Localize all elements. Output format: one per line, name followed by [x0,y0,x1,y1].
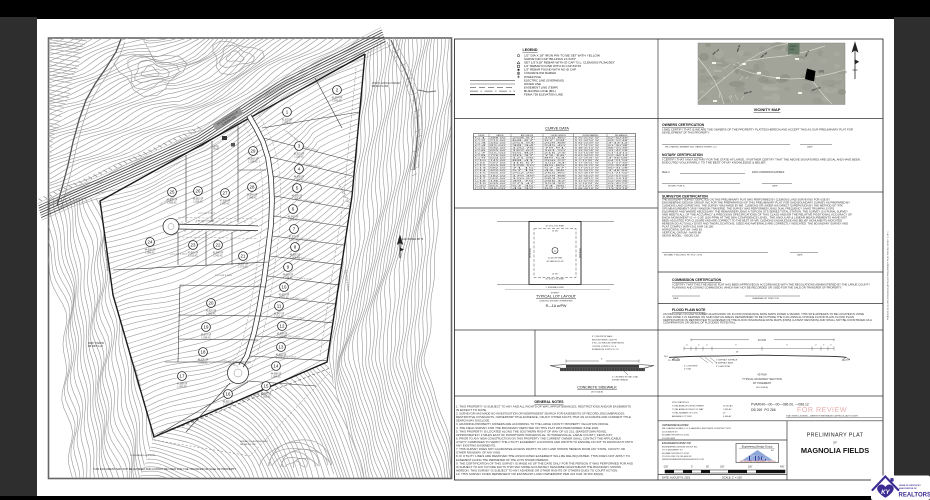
svg-text:20' DR & UTIL ESMT: 20' DR & UTIL ESMT [546,226,566,228]
svg-text:25,000 SF MIN: 25,000 SF MIN [548,258,562,260]
svg-text:1.039 AC: 1.039 AC [248,160,258,163]
svg-text:Engineering Design Group: Engineering Design Group [742,444,773,448]
svg-text:92.57': 92.57' [544,188,569,190]
svg-text:4" CONCRETE WALK: 4" CONCRETE WALK [592,335,613,338]
svg-text:16: 16 [226,392,231,397]
svg-text:1" ASPHALT SURFACE: 1" ASPHALT SURFACE [716,358,738,361]
svg-text:GREEN: GREEN [790,46,797,48]
svg-text:GENERAL NOTES: GENERAL NOTES [534,400,564,404]
svg-text:(UNLESS SHOWN OTHERWISE): (UNLESS SHOWN OTHERWISE) [539,301,572,303]
svg-text:1,802 AC: 1,802 AC [723,408,732,411]
svg-text:DATE: DATE [807,146,813,149]
svg-text:1.026 AC: 1.026 AC [223,403,233,406]
svg-text:48,036 SF: 48,036 SF [198,360,209,362]
svg-text:(NO SCALE): (NO SCALE) [591,391,603,394]
svg-text:CHAIRMAN OR DIRECTOR: CHAIRMAN OR DIRECTOR [752,297,779,300]
svg-text:1/2" REBAR FOUND WITH NO ID CA: 1/2" REBAR FOUND WITH NO ID CAP [524,68,576,72]
svg-text:SUBJECT & ACCESS ONLY: SUBJECT & ACCESS ONLY [240,440,268,443]
svg-text:LEGEND: LEGEND [523,48,538,52]
svg-text:1.068 AC: 1.068 AC [247,196,257,199]
svg-text:1.013 AC: 1.013 AC [294,155,304,158]
svg-text:1.097 AC: 1.097 AC [177,385,187,388]
svg-text:1.026 AC: 1.026 AC [288,218,298,221]
svg-text:-100': -100' [663,465,669,468]
svg-text:4. THE FIELD SURVEY FOR THE BO: 4. THE FIELD SURVEY FOR THE BOUNDARY DEP… [456,427,599,430]
svg-text:THIS DOCUMENT MAY NOT BE ALTER: THIS DOCUMENT MAY NOT BE ALTERED AND CAN… [93,467,236,471]
svg-text:R—1A w/PW: R—1A w/PW [546,304,567,308]
svg-text:TYPICAL LOT LAYOUT: TYPICAL LOT LAYOUT [536,295,577,299]
svg-text:PVA#040-00-00-086.00 MAGNOLIA: PVA#040-00-00-086.00 MAGNOLIA FIELDS PRE… [887,231,890,320]
svg-text:13°33'18": 13°33'18" [608,188,630,190]
svg-text:43,041 SF: 43,041 SF [188,253,199,255]
svg-text:27: 27 [223,191,228,196]
svg-text:ARC LENGTH: ARC LENGTH [521,134,534,137]
svg-text:29: 29 [251,149,256,154]
svg-text:OTHER ROADWAY OF ANY KIND.: OTHER ROADWAY OF ANY KIND. [456,452,501,455]
svg-text:18" PAVEMENT: 18" PAVEMENT [753,381,772,385]
svg-text:X, AND ZONE X IS DEFINED ON SA: X, AND ZONE X IS DEFINED ON SAID MAP AS … [663,316,854,319]
svg-text:41,047 SF: 41,047 SF [274,314,285,316]
svg-text:SURVEYOR CAP "BILLINGS LS 3473: SURVEYOR CAP "BILLINGS LS 3473" [524,57,576,61]
svg-text:1.055 AC: 1.055 AC [167,201,177,204]
svg-text:CONFIRMATION OR DENIAL OF FLOO: CONFIRMATION OR DENIAL OF FLOODING POTEN… [663,322,736,325]
svg-text:49,063 SF: 49,063 SF [283,275,294,277]
svg-text:DATE: DATE [772,185,778,188]
svg-text:1.071 AC: 1.071 AC [238,265,248,268]
svg-text:21: 21 [241,254,246,259]
svg-text:CHORD BEARING: CHORD BEARING [582,134,598,137]
svg-text:1.071 AC: 1.071 AC [282,121,292,124]
svg-text:AS INDICATED ON MAP NUMBER 211: AS INDICATED ON MAP NUMBER 21123C0150C O… [663,313,865,316]
svg-text:13: 13 [279,345,284,350]
svg-text:S 68°46'18" W: S 68°46'18" W [575,188,599,190]
svg-text:44,078 SF: 44,078 SF [145,250,156,252]
svg-text:RESTRICTIVE COVENANTS, OWNERSH: RESTRICTIVE COVENANTS, OWNERSHIP TITLE E… [456,416,631,419]
svg-text:42,074 SF: 42,074 SF [332,98,343,100]
svg-text:ASSOCIATION OF: ASSOCIATION OF [899,487,917,490]
svg-text:1.026 AC: 1.026 AC [193,200,203,203]
svg-text:22: 22 [216,243,221,248]
svg-text:10. THIS SURVEY DOES REPRESENT: 10. THIS SURVEY DOES REPRESENT OR ESTABL… [456,473,604,476]
svg-text:400': 400' [780,465,785,468]
svg-text:TOTAL AREA OF RIGHT OF WAY: TOTAL AREA OF RIGHT OF WAY [672,408,704,411]
svg-text:FOR REVIEW: FOR REVIEW [797,406,847,414]
svg-text:DATE: DATE [673,297,679,300]
svg-text:MAGNOLIA FIELDS: MAGNOLIA FIELDS [801,446,869,455]
svg-text:18: 18 [201,350,206,355]
svg-text:BUILDING LINE (B/L): BUILDING LINE (B/L) [524,89,556,93]
svg-text:47,089 SF: 47,089 SF [177,384,188,386]
svg-text:1/2" REBAR FOUND WITH ID CAP #: 1/2" REBAR FOUND WITH ID CAP #3733 [524,64,582,68]
svg-text:29,194 AC: 29,194 AC [723,405,733,408]
svg-text:23: 23 [191,243,196,248]
svg-text:49,083 SF: 49,083 SF [248,159,259,161]
svg-text:OF: OF [833,441,837,445]
svg-text:ELECTRIC LINE (OVERHEAD): ELECTRIC LINE (OVERHEAD) [524,78,564,82]
svg-text:CONCRETE R/W MARKER: CONCRETE R/W MARKER [524,71,556,75]
svg-text:LAKE: LAKE [790,48,796,51]
svg-text:1.013 AC: 1.013 AC [188,254,198,257]
svg-text:46,042 SF: 46,042 SF [288,217,299,219]
svg-text:PLANNING AND ZONING COMMISSION: PLANNING AND ZONING COMMISSION, WHICH MA… [672,287,842,290]
svg-text:BROOM FINISH, #300 PSI: BROOM FINISH, #300 PSI [592,339,617,341]
svg-text:10' DR & B/L: 10' DR & B/L [530,248,532,258]
svg-text:1.068 AC: 1.068 AC [198,361,208,364]
svg-text:1/2" DIA X 18" IRON PIN TO BE: 1/2" DIA X 18" IRON PIN TO BE SET WITH Y… [524,54,601,58]
svg-text:41,057 SF: 41,057 SF [238,264,249,266]
svg-text:ENGINEERING DESIGN GROUP INC: ENGINEERING DESIGN GROUP INC [662,446,698,448]
svg-text:17: 17 [180,374,185,379]
svg-text:SET 1/2"X18" REBAR WITH ID CAP: SET 1/2"X18" REBAR WITH ID CAP "D.L. CLE… [524,61,615,65]
svg-text:C21: C21 [475,188,486,190]
svg-text:4" DGA: 4" DGA [684,368,691,371]
svg-text:46,062 SF: 46,062 SF [193,199,204,201]
svg-text:CERTIFICATION IS RESTRICTED TO: CERTIFICATION IS RESTRICTED TO A REVIEW … [663,319,873,322]
svg-text:1. THIS PROPERTY IS SUBJECT TO: 1. THIS PROPERTY IS SUBJECT TO ANY AND A… [456,406,631,409]
svg-text:1.084 AC: 1.084 AC [145,251,155,254]
svg-text:20' DR & UTIL ESMT: 20' DR & UTIL ESMT [546,279,566,281]
svg-text:46,052 SF: 46,052 SF [223,402,234,404]
svg-text:224 N MILES ST: 224 N MILES ST [662,431,678,433]
svg-text:MARY HARDIN: MARY HARDIN [88,342,104,345]
svg-text:TYPICAL ROADWAY SECTION: TYPICAL ROADWAY SECTION [742,377,782,381]
svg-text:41,037 SF: 41,037 SF [282,120,293,122]
svg-text:DATE: DATE [797,254,803,257]
svg-text:24%: 24% [664,356,668,358]
svg-text:86.00': 86.00' [490,188,508,190]
svg-text:9. THE CERTIFICATION OF THIS S: 9. THE CERTIFICATION OF THIS SURVEY IS M… [456,462,633,465]
svg-text:40,020 SF: 40,020 SF [206,311,217,313]
svg-text:SITE STATISTICS: SITE STATISTICS [672,401,690,404]
svg-text:1.055 AC: 1.055 AC [261,395,271,398]
svg-text:1.042 AC: 1.042 AC [332,99,342,102]
svg-text:ENGINEER/SURVEYOR: ENGINEER/SURVEYOR [662,441,691,445]
svg-text:48,046 SF: 48,046 SF [247,195,258,197]
svg-text:0.940 AC: 0.940 AC [723,415,732,418]
svg-text:DATE: AUGUST 8, 2022: DATE: AUGUST 8, 2022 [662,476,691,480]
svg-text:100': 100' [720,465,725,468]
svg-text:14: 14 [274,364,279,369]
svg-text:5' SIDEWALK ESMT: 5' SIDEWALK ESMT [546,286,565,289]
svg-text:48,026 SF: 48,026 SF [290,255,301,257]
svg-text:12: 12 [280,324,285,329]
svg-text:WILL HARRIS HOMES, LLC & HAUFI: WILL HARRIS HOMES, LLC & HAUFIELD BROTHE… [662,427,731,430]
svg-text:45,015 SF: 45,015 SF [261,394,272,396]
svg-text:2%: 1/4" /FT: 2%: 1/4" /FT [668,360,679,362]
svg-text:VICINITY MAP: VICINITY MAP [754,107,781,112]
svg-text:OWNERS CERTIFICATION: OWNERS CERTIFICATION [662,123,705,127]
svg-text:OWNER/DEVELOPER: OWNER/DEVELOPER [662,423,689,427]
svg-text:40' MAX BLDG HT: 40' MAX BLDG HT [546,260,564,263]
svg-text:1.084 AC: 1.084 AC [271,375,281,378]
svg-text:42,084 SF: 42,084 SF [277,334,288,336]
svg-text:TOTAL AREA OF DEVELOPMENT: TOTAL AREA OF DEVELOPMENT [672,405,705,408]
svg-text:24: 24 [148,240,153,245]
svg-text:1.068 AC: 1.068 AC [290,256,300,259]
svg-text:GEOID MODEL - GEOID 12A: GEOID MODEL - GEOID 12A [662,235,699,238]
svg-text:JOHN C & PAULA HARVEY: JOHN C & PAULA HARVEY [372,82,401,85]
svg-text:44,068 SF: 44,068 SF [271,374,282,376]
svg-text:AVERAGE LOT SIZE: AVERAGE LOT SIZE [672,415,692,418]
svg-text:1.055 AC: 1.055 AC [292,197,302,200]
svg-text:1.071 AC: 1.071 AC [274,315,284,318]
svg-text:10: 10 [282,285,287,290]
svg-text:10' B/L: 10' B/L [552,231,559,233]
svg-text:TOTAL NUMBER OF LOTS: TOTAL NUMBER OF LOTS [672,412,698,415]
svg-text:44,058 SF: 44,058 SF [294,177,305,179]
svg-text:COLDWATER GUS BLVD: COLDWATER GUS BLVD [130,454,156,457]
svg-text:DEVELOPMENT OF THIS PROPERTY.: DEVELOPMENT OF THIS PROPERTY. [662,132,710,135]
svg-text:DELTA ANGLE: DELTA ANGLE [615,134,628,137]
svg-text:8. IF UTILITY LINES ARE REMOVE: 8. IF UTILITY LINES ARE REMOVED THE ASSO… [456,455,630,458]
svg-text:DB 391 PG 453: DB 391 PG 453 [372,86,389,88]
svg-text:47,079 SF: 47,079 SF [289,237,300,239]
svg-text:1.042 AC: 1.042 AC [213,254,223,257]
svg-text:TRACTS/WDC-SUB/WIL—HARRIS HOME: TRACTS/WDC-SUB/WIL—HARRIS HOMES/MAGNOLIA… [786,415,858,418]
svg-text:50': 50' [706,465,710,468]
svg-text:CURVE DATA: CURVE DATA [545,127,569,131]
svg-text:PRELIMINARY PLAT: PRELIMINARY PLAT [807,433,864,439]
svg-text:CONTRL JOINTS 5' OC &: CONTRL JOINTS 5' OC & [592,346,617,348]
svg-text:FEMA 759 ELEVATION LINE: FEMA 759 ELEVATION LINE [524,93,563,97]
svg-text:11: 11 [277,304,282,309]
svg-text:RADIUS: RADIUS [496,134,504,137]
svg-text:COMMISSION CERTIFICATION: COMMISSION CERTIFICATION [672,278,722,282]
svg-text:CONCRETE SIDEWALK: CONCRETE SIDEWALK [577,386,617,390]
svg-text:26: 26 [196,189,201,194]
svg-text:DATE COMMISSION EXPIRES: DATE COMMISSION EXPIRES [752,171,785,174]
svg-text:10' B/L: 10' B/L [552,274,559,276]
svg-text:ELIZABETHTOWN KY 42701: ELIZABETHTOWN KY 42701 [662,434,690,437]
svg-text:WWW.ENGINEERINGDESIGNGROUP.COM: WWW.ENGINEERINGDESIGNGROUP.COM [662,459,704,461]
svg-text:1.039 AC: 1.039 AC [283,276,293,279]
svg-text:SITE: SITE [819,70,825,74]
svg-text:10' DR & B/L: 10' DR & B/L [578,248,580,258]
svg-text:(DENSE GRADE): (DENSE GRADE) [612,378,628,381]
svg-text:19: 19 [204,325,209,330]
svg-text:POWER POLE: POWER POLE [524,75,541,79]
svg-text:1.000 AC: 1.000 AC [206,312,216,315]
svg-text:42,004 SF: 42,004 SF [213,253,224,255]
svg-text:ELIZABETHTOWN KY 42701: ELIZABETHTOWN KY 42701 [662,452,690,455]
svg-text:WILL HARRIS, MEMBER WILL HARRI: WILL HARRIS, MEMBER WILL HARRIS HOMES, L… [665,146,717,149]
svg-text:270-769-7436 270-765-6608 FX: 270-769-7436 270-765-6608 FX [662,456,692,458]
svg-text:270-982-4663: 270-982-4663 [662,438,676,440]
svg-text:49,073 SF: 49,073 SF [201,335,212,337]
svg-text:MICHAEL P BILLINGS, PE, PLS #: MICHAEL P BILLINGS, PE, PLS # 3274 [664,254,703,257]
svg-text:4" CONCRETE: 4" CONCRETE [684,366,698,368]
svg-text:HOME OF KENTUCKY: HOME OF KENTUCKY [899,485,921,487]
svg-text:1.000 AC: 1.000 AC [279,296,289,299]
svg-text:1.097 AC: 1.097 AC [289,238,299,241]
svg-text:FLOOD PLAIN NOTE: FLOOD PLAIN NOTE [672,308,706,312]
svg-text:1.042 AC: 1.042 AC [277,335,287,338]
svg-text:EASEMENT LINE (TEMP): EASEMENT LINE (TEMP) [524,86,558,90]
svg-text:15: 15 [264,384,269,389]
svg-text:200': 200' [748,465,753,468]
svg-text:REALTORS: REALTORS [899,492,930,498]
svg-text:NOTARY PUBLIC: NOTARY PUBLIC [668,185,685,188]
svg-text:6. PRIOR TO ANY NEW CONSTRUCTI: 6. PRIOR TO ANY NEW CONSTRUCTION ON THIS… [456,437,621,440]
svg-text:1.013 AC: 1.013 AC [276,356,286,359]
svg-text:SCALE: 1" = 100': SCALE: 1" = 100' [722,476,743,480]
svg-text:45,025 SF: 45,025 SF [167,200,178,202]
svg-text:N 27°14'08" E 208.15': N 27°14'08" E 208.15' [215,275,233,277]
svg-text:1.084 AC: 1.084 AC [294,178,304,181]
svg-text:4" CRUSHED STONE, DGAL: 4" CRUSHED STONE, DGAL [612,376,639,379]
svg-text:DB 269 PG 266: DB 269 PG 266 [751,408,776,412]
svg-text:2" ASPHALT BASE: 2" ASPHALT BASE [716,362,734,365]
svg-text:UTILITY COMPANIES TO VERIFY TH: UTILITY COMPANIES TO VERIFY THE UTILITY … [456,441,633,444]
svg-text:775 S MULBERRY ST: 775 S MULBERRY ST [662,450,683,452]
svg-text:KY: KY [881,489,890,496]
svg-text:SEAL #: SEAL # [662,171,670,174]
svg-text:NOTARY CERTIFICATION: NOTARY CERTIFICATION [662,153,703,157]
svg-text:3. ADJOINING PROPERTY OWNERS A: 3. ADJOINING PROPERTY OWNERS ARE ACCORDI… [456,423,609,426]
svg-text:6"X6"-#10 WELDED WIRE MESH-: 6"X6"-#10 WELDED WIRE MESH- [592,343,624,345]
svg-text:45,005 SF: 45,005 SF [292,196,303,198]
svg-text:4" DGA STONE: 4" DGA STONE [716,365,731,368]
svg-text:40' R/W: 40' R/W [758,340,767,342]
svg-text:(NO SCALE): (NO SCALE) [756,386,768,389]
svg-text:25: 25 [170,190,175,195]
svg-text:43,031 SF: 43,031 SF [276,355,287,357]
svg-text:DB 358 PG 128: DB 358 PG 128 [240,444,256,446]
svg-text:20: 20 [209,301,214,306]
svg-text:EXPANSION JOINTS 25' OC: EXPANSION JOINTS 25' OC [592,348,619,351]
svg-text:40,010 SF: 40,010 SF [279,295,290,297]
svg-text:43,021 SF: 43,021 SF [294,154,305,156]
svg-text:1.097 AC: 1.097 AC [220,202,230,205]
svg-text:47,009 SF: 47,009 SF [220,201,231,203]
svg-text:43.32': 43.32' [512,188,538,190]
svg-text:1.039 AC: 1.039 AC [201,336,211,339]
svg-text:28: 28 [250,185,255,190]
svg-text:WATER LINE: WATER LINE [524,82,541,86]
svg-text:EXECUTED VOLUNTARILY, TO THE B: EXECUTED VOLUNTARILY, TO THE BEST OF MY … [662,162,766,165]
svg-text:DB 388 PG 23: DB 388 PG 23 [88,346,104,348]
